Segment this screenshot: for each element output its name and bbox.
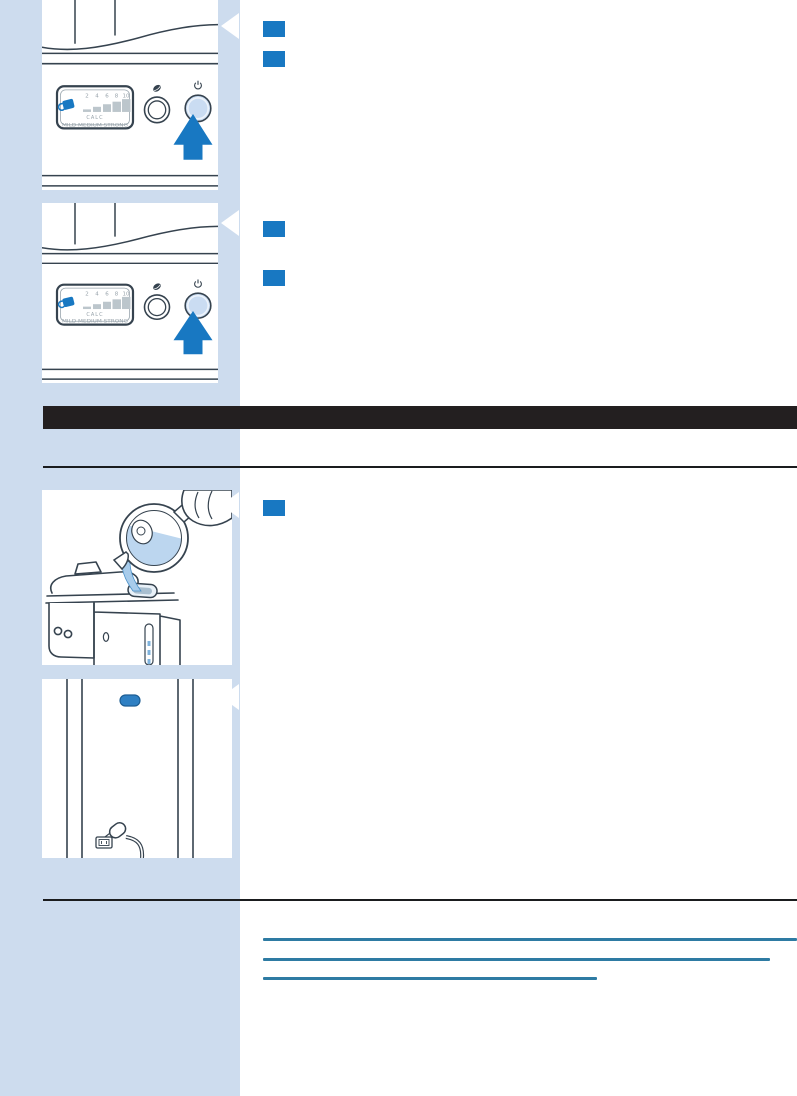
power-icon xyxy=(195,81,202,89)
figure-machine-front xyxy=(42,679,232,858)
tick-label: 8 xyxy=(115,94,119,100)
divider-rule xyxy=(43,466,797,468)
tick-label: 10 xyxy=(123,94,130,100)
water-level-marks xyxy=(148,641,151,664)
tick-label: 2 xyxy=(85,291,89,297)
lid-knob xyxy=(75,562,101,574)
chapter-link-3[interactable] xyxy=(263,977,597,980)
tick-label: 4 xyxy=(95,291,99,297)
power-button xyxy=(185,95,211,121)
figure-control-panel-1: 2 4 6 8 10 CALC MILD MEDIUM STRONG xyxy=(42,0,218,190)
tick-label: 2 xyxy=(85,94,88,100)
tick-label: 8 xyxy=(115,291,119,297)
strength-scale-label: MILD MEDIUM STRONG xyxy=(62,122,129,128)
callout-pointer xyxy=(221,13,239,39)
step-number-badge xyxy=(263,51,285,67)
coffee-bean-icon xyxy=(152,282,162,291)
press-arrow-icon xyxy=(174,114,213,160)
figure-control-panel-2: 2 4 6 8 10 CALC MILD MEDIUM STRONG xyxy=(42,203,218,383)
strength-display: 2 4 6 8 10 CALC MILD MEDIUM STRONG xyxy=(57,285,133,325)
step-number-badge xyxy=(263,270,285,286)
strength-scale-label: MILD MEDIUM STRONG xyxy=(62,319,128,324)
divider-rule xyxy=(43,899,797,901)
step-number-badge xyxy=(263,500,285,516)
chapter-link-1[interactable] xyxy=(263,938,797,941)
tick-label: 10 xyxy=(123,291,131,297)
tick-label: 6 xyxy=(105,94,109,100)
step-number-badge xyxy=(263,21,285,37)
power-button xyxy=(185,293,211,318)
machine-body xyxy=(46,562,180,665)
callout-pointer xyxy=(221,210,239,236)
chapter-link-2[interactable] xyxy=(263,958,770,961)
indicator-light xyxy=(120,695,140,706)
section-header-bar xyxy=(43,406,797,429)
callout-pointer xyxy=(221,492,239,518)
machine-front-drawing xyxy=(42,679,232,858)
control-panel-drawing: 2 4 6 8 10 CALC MILD MEDIUM STRONG xyxy=(42,203,218,383)
machine-top-curve xyxy=(42,25,218,50)
coffee-bean-icon xyxy=(152,83,162,93)
aroma-button xyxy=(145,97,170,123)
callout-pointer xyxy=(221,684,239,710)
manual-page: 2 4 6 8 10 CALC MILD MEDIUM STRONG xyxy=(0,0,797,1096)
aroma-button xyxy=(145,295,170,319)
strength-display: 2 4 6 8 10 CALC MILD MEDIUM STRONG xyxy=(57,86,133,128)
tick-label: 4 xyxy=(95,94,99,100)
tick-label: 6 xyxy=(105,291,109,297)
pour-water-drawing xyxy=(42,490,232,665)
control-panel-drawing: 2 4 6 8 10 CALC MILD MEDIUM STRONG xyxy=(42,0,218,190)
figure-pour-water xyxy=(42,490,232,665)
calc-label: CALC xyxy=(86,312,103,318)
calc-label: CALC xyxy=(86,115,103,121)
power-icon xyxy=(195,279,202,287)
press-arrow-icon xyxy=(174,311,213,354)
wall-socket-icon xyxy=(96,837,112,848)
step-number-badge xyxy=(263,221,285,237)
